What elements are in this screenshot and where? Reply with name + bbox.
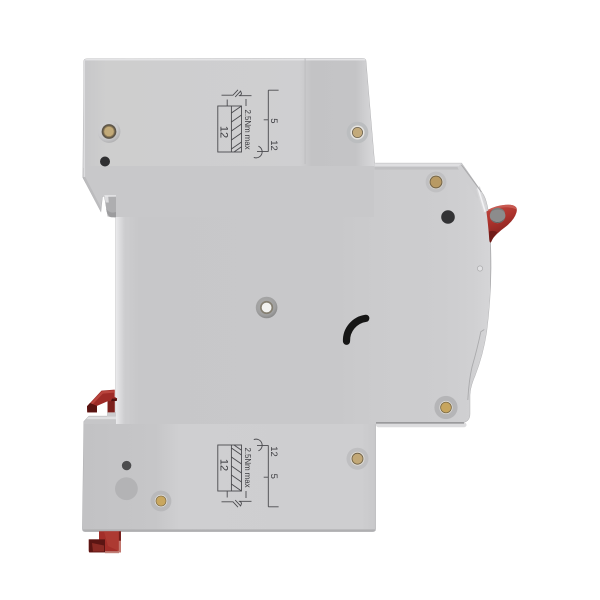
svg-text:5: 5 — [269, 118, 280, 123]
svg-text:2.5Nm max: 2.5Nm max — [243, 110, 252, 150]
svg-text:2.5Nm max: 2.5Nm max — [243, 448, 252, 488]
svg-text:12: 12 — [218, 459, 230, 471]
svg-text:12: 12 — [269, 140, 280, 150]
svg-text:12: 12 — [218, 126, 230, 138]
svg-text:5: 5 — [269, 474, 280, 479]
svg-text:12: 12 — [269, 446, 280, 456]
